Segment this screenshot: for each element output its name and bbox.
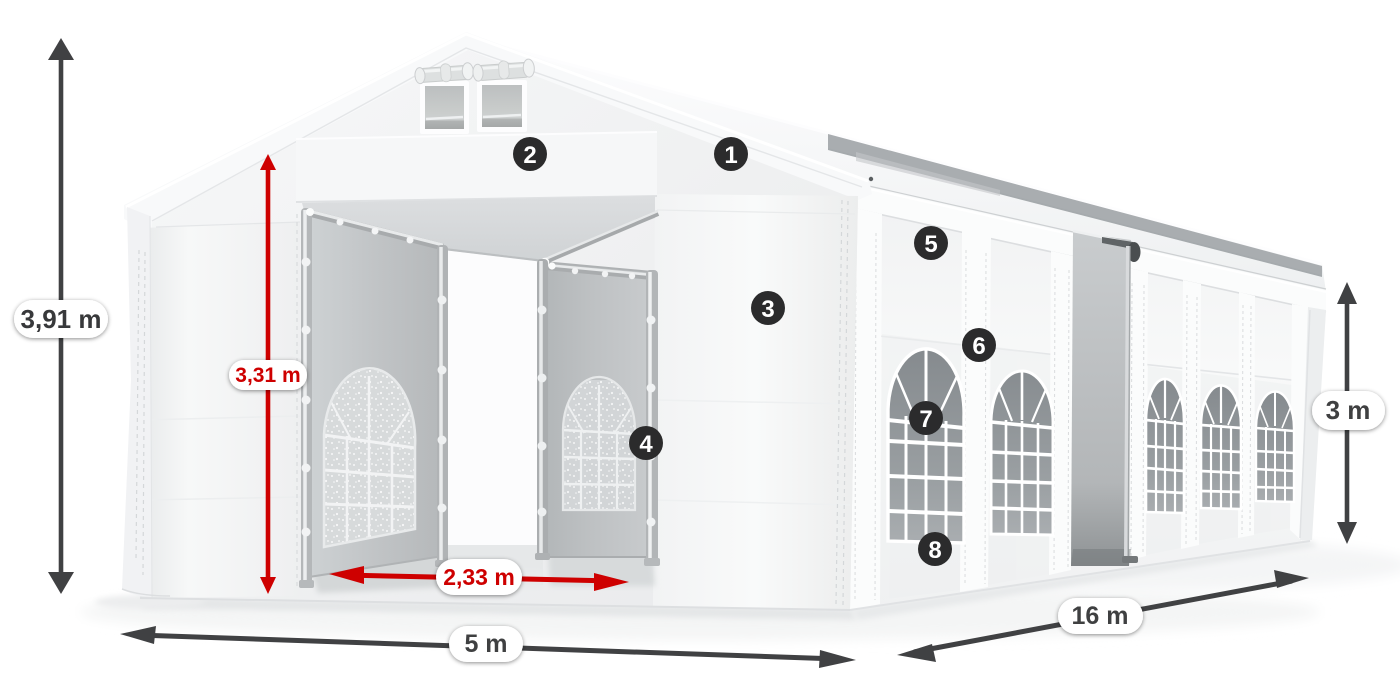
svg-text:8: 8	[928, 537, 941, 564]
svg-text:1: 1	[724, 142, 737, 169]
svg-text:3,91 m: 3,91 m	[21, 304, 102, 334]
svg-text:5: 5	[924, 231, 937, 258]
svg-text:3 m: 3 m	[1326, 395, 1371, 425]
svg-text:3,31 m: 3,31 m	[235, 364, 300, 387]
svg-text:2: 2	[523, 142, 536, 169]
svg-text:3: 3	[761, 296, 774, 323]
svg-text:16 m: 16 m	[1072, 602, 1129, 630]
svg-text:2,33 m: 2,33 m	[443, 564, 515, 590]
svg-text:7: 7	[919, 406, 932, 433]
svg-text:5 m: 5 m	[464, 630, 507, 658]
svg-text:4: 4	[639, 431, 653, 458]
svg-text:6: 6	[972, 333, 985, 360]
